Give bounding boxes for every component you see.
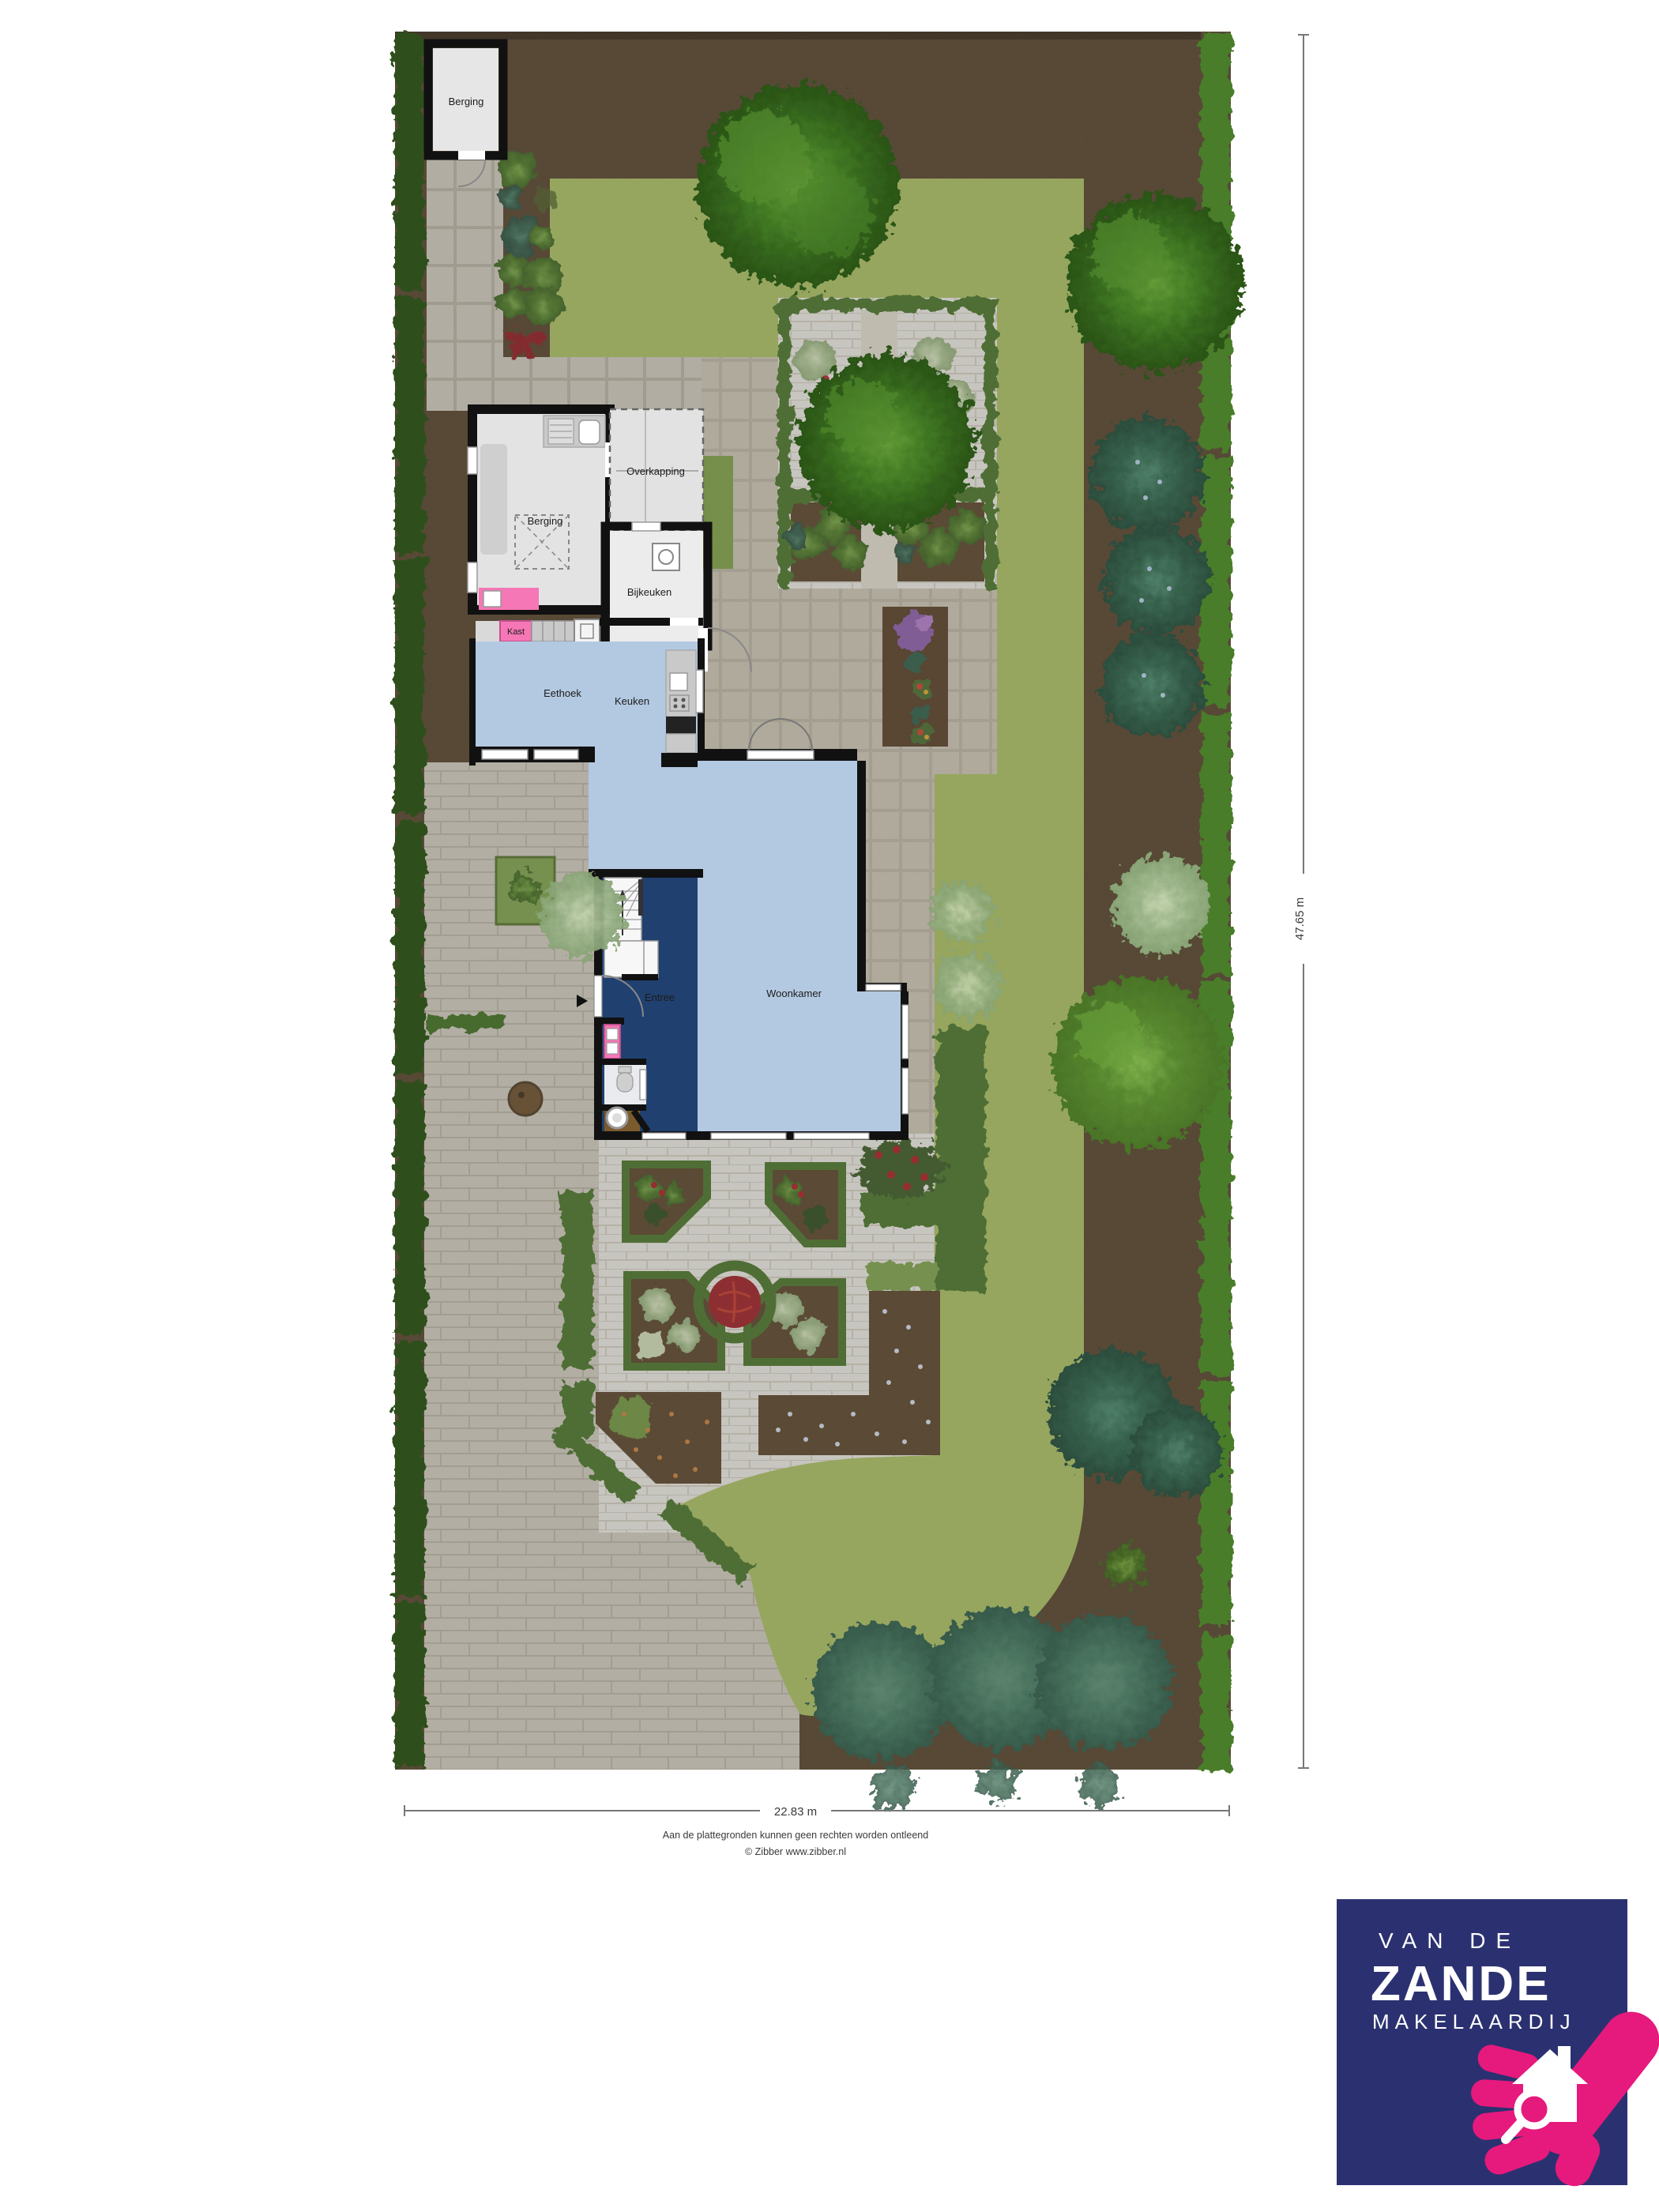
logo-line3: MAKELAARDIJ (1372, 2010, 1576, 2033)
tree-parterre (798, 354, 975, 531)
shed-label: Berging (449, 96, 484, 107)
entree-label: Entree (645, 991, 675, 1003)
olive-row-bottom (811, 1608, 1172, 1809)
woonkamer-label: Woonkamer (766, 987, 822, 999)
room-overkapping: Overkapping (610, 409, 703, 531)
sprig (1105, 1545, 1146, 1586)
overkapping-label: Overkapping (626, 465, 685, 477)
tree-mid-right (1052, 977, 1223, 1148)
garage-label: Berging (528, 515, 563, 527)
logo-line1: VAN DE (1379, 1928, 1521, 1953)
hedge-left (395, 32, 424, 1766)
depth-dimension-label: 47.65 m (1293, 897, 1307, 940)
sage-bush-2 (935, 953, 1001, 1019)
keuken-label: Keuken (615, 695, 649, 707)
sage-bush-1 (931, 881, 994, 944)
kast-label: Kast (507, 627, 525, 637)
eethoek-label: Eethoek (544, 687, 581, 699)
floorplan-page: Berging Berging Overkapping Bijke (0, 0, 1659, 2212)
credit-text: © Zibber www.zibber.nl (745, 1846, 846, 1857)
shrubs-right-upper (1090, 417, 1211, 738)
disclaimer-text: Aan de plattegronden kunnen geen rechten… (663, 1830, 928, 1841)
logo-line2: ZANDE (1371, 1957, 1552, 2011)
tree-top-center (697, 85, 899, 287)
site-plan-svg: Berging Berging Overkapping Bijke (0, 0, 1659, 2212)
bijkeuken-label: Bijkeuken (627, 586, 671, 598)
feathery-bush (540, 872, 625, 957)
agency-logo: VAN DE ZANDE MAKELAARDIJ (1337, 1899, 1659, 2191)
tree-top-right (1066, 194, 1243, 371)
sage-tree-right (1112, 856, 1210, 954)
width-dimension-label: 22.83 m (774, 1805, 817, 1819)
